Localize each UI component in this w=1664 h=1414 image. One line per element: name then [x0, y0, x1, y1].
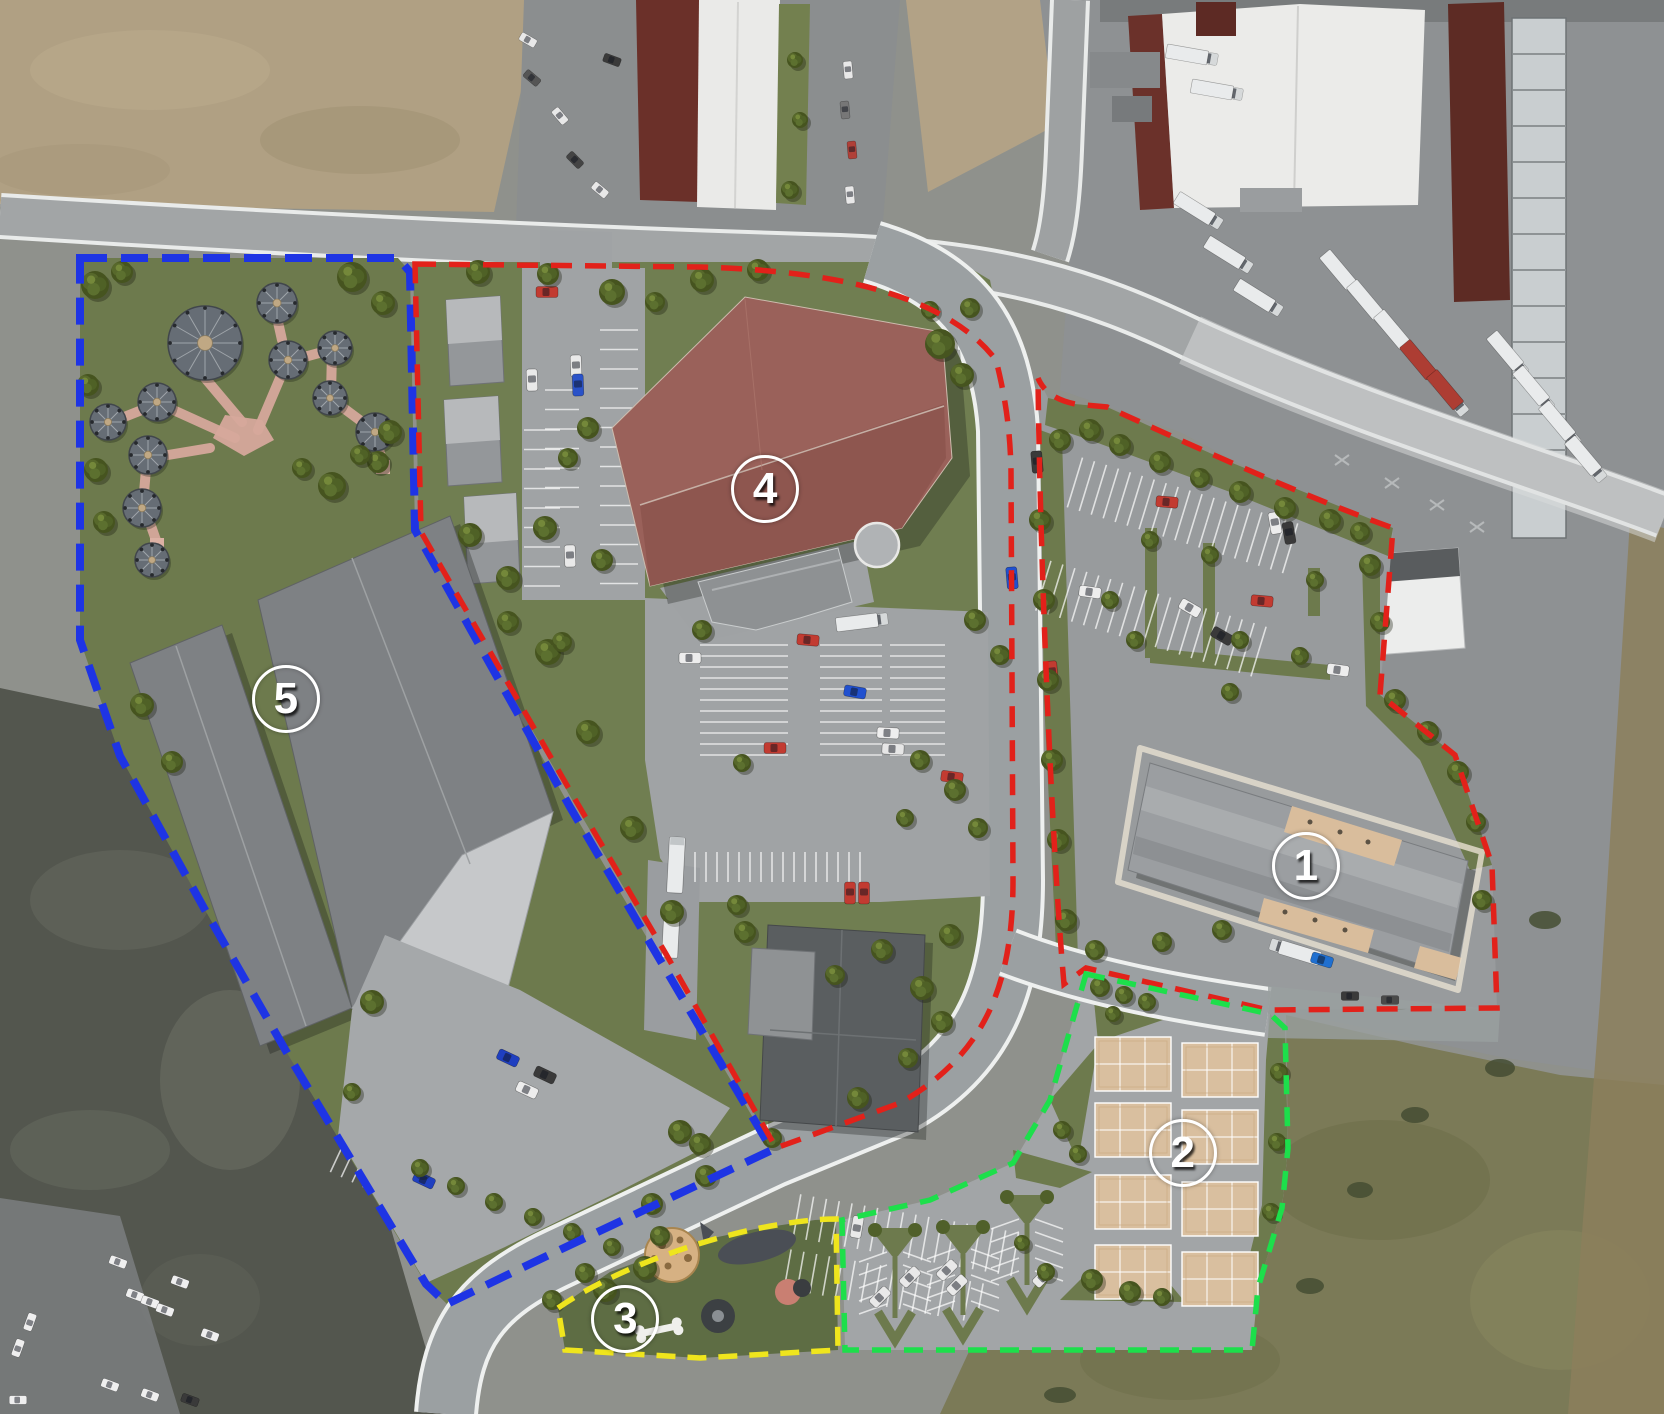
zone-number: 4	[753, 467, 777, 511]
zone-marker-1[interactable]: 1	[1272, 832, 1340, 900]
zone-number: 1	[1294, 844, 1318, 888]
site-plan-map: 1 2 3 4 5	[0, 0, 1664, 1414]
zone-number: 5	[274, 677, 298, 721]
zone-number: 3	[613, 1297, 637, 1341]
zone-marker-5[interactable]: 5	[252, 665, 320, 733]
zone-number: 2	[1171, 1131, 1195, 1175]
zone-marker-2[interactable]: 2	[1149, 1119, 1217, 1187]
site-plan-aerial-image	[0, 0, 1664, 1414]
